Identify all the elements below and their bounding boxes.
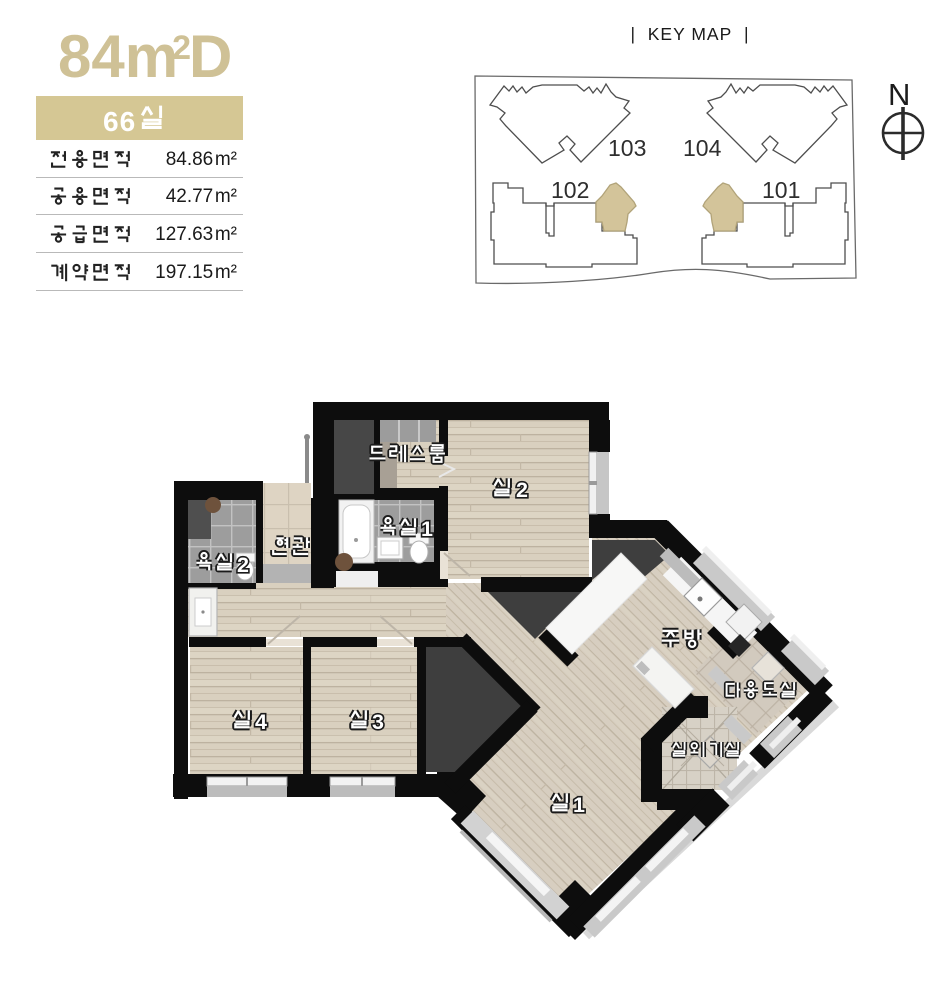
svg-text:N: N bbox=[888, 77, 910, 112]
svg-text:2: 2 bbox=[516, 478, 528, 502]
svg-text:1: 1 bbox=[421, 517, 433, 541]
svg-text:103: 103 bbox=[608, 135, 646, 161]
svg-text:4: 4 bbox=[255, 710, 267, 734]
svg-text:3: 3 bbox=[372, 710, 384, 734]
svg-text:1: 1 bbox=[573, 793, 585, 817]
svg-text:102: 102 bbox=[551, 177, 589, 203]
svg-text:101: 101 bbox=[762, 177, 800, 203]
svg-text:2: 2 bbox=[237, 553, 249, 577]
svg-text:66: 66 bbox=[103, 106, 136, 137]
svg-text:104: 104 bbox=[683, 135, 722, 161]
